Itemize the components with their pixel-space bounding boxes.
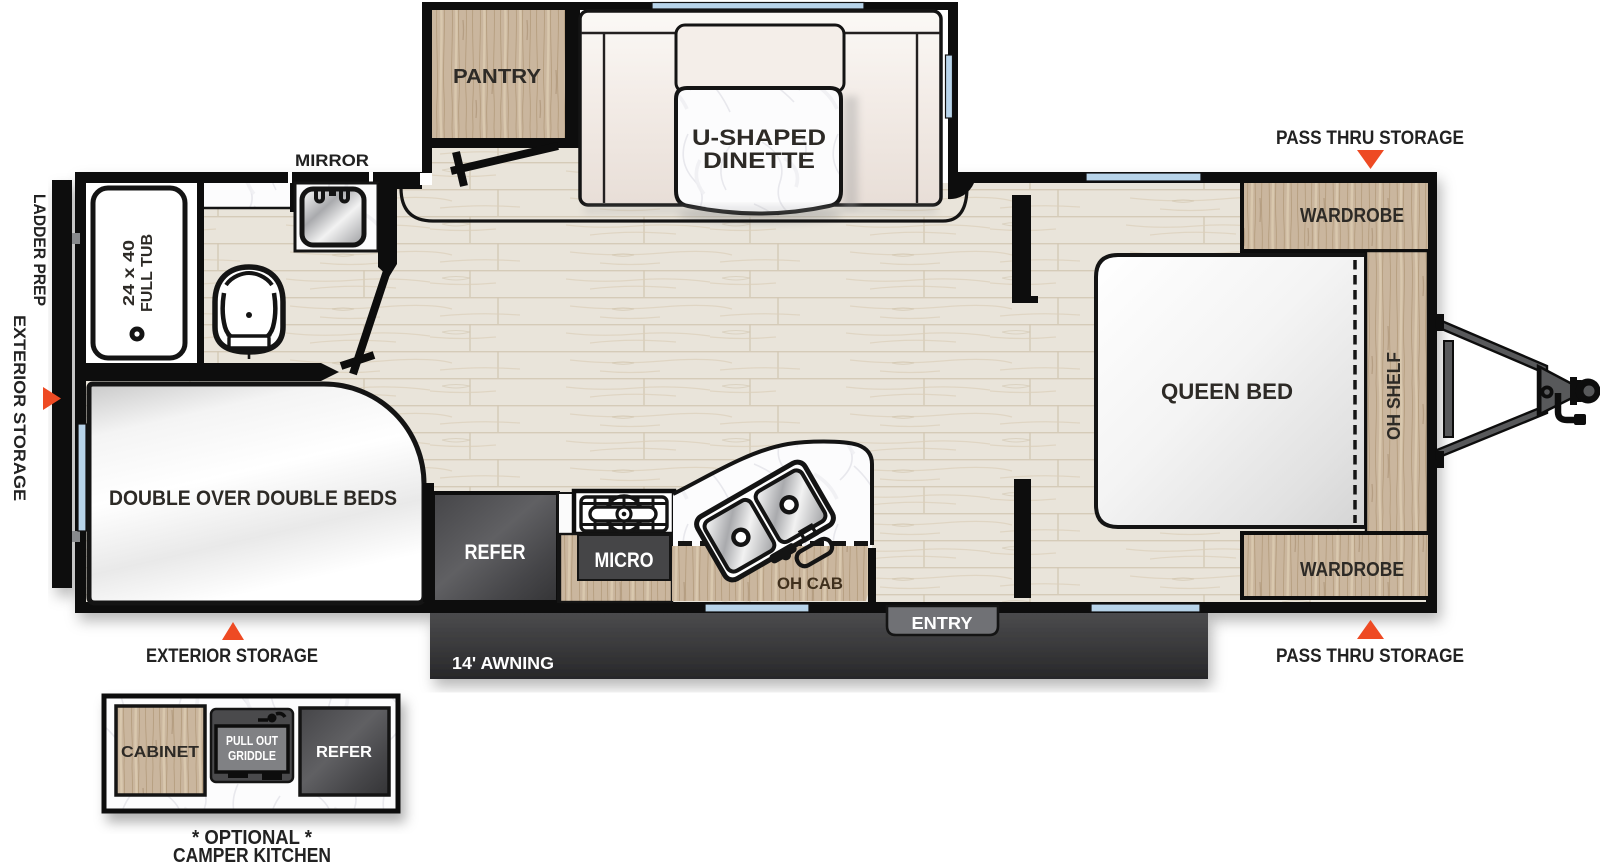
svg-text:24 x 40: 24 x 40 (121, 240, 138, 306)
svg-text:WARDROBE: WARDROBE (1300, 559, 1404, 581)
svg-text:14' AWNING: 14' AWNING (452, 653, 554, 673)
svg-text:MICRO: MICRO (595, 549, 654, 572)
svg-text:PASS THRU STORAGE: PASS THRU STORAGE (1276, 645, 1464, 667)
svg-text:OH SHELF: OH SHELF (1384, 352, 1404, 440)
svg-text:PULL OUT: PULL OUT (226, 734, 278, 748)
svg-text:FULL TUB: FULL TUB (139, 234, 156, 312)
svg-text:REFER: REFER (316, 744, 372, 761)
svg-text:DOUBLE OVER DOUBLE BEDS: DOUBLE OVER DOUBLE BEDS (109, 487, 397, 510)
svg-text:PASS THRU STORAGE: PASS THRU STORAGE (1276, 127, 1464, 149)
svg-text:ENTRY: ENTRY (912, 613, 973, 633)
svg-text:QUEEN BED: QUEEN BED (1161, 379, 1293, 404)
svg-text:REFER: REFER (465, 541, 526, 564)
svg-text:PANTRY: PANTRY (453, 66, 542, 88)
svg-text:LADDER PREP: LADDER PREP (30, 194, 49, 306)
svg-text:EXTERIOR STORAGE: EXTERIOR STORAGE (146, 645, 318, 667)
svg-text:OH CAB: OH CAB (777, 575, 843, 593)
svg-text:MIRROR: MIRROR (295, 152, 369, 170)
svg-text:DINETTE: DINETTE (703, 148, 815, 173)
svg-text:U-SHAPED: U-SHAPED (692, 125, 826, 150)
svg-text:CAMPER KITCHEN: CAMPER KITCHEN (173, 845, 331, 863)
svg-text:CABINET: CABINET (121, 744, 200, 761)
svg-text:EXTERIOR STORAGE: EXTERIOR STORAGE (10, 315, 29, 501)
svg-text:GRIDDLE: GRIDDLE (228, 749, 276, 763)
svg-text:WARDROBE: WARDROBE (1300, 205, 1404, 227)
